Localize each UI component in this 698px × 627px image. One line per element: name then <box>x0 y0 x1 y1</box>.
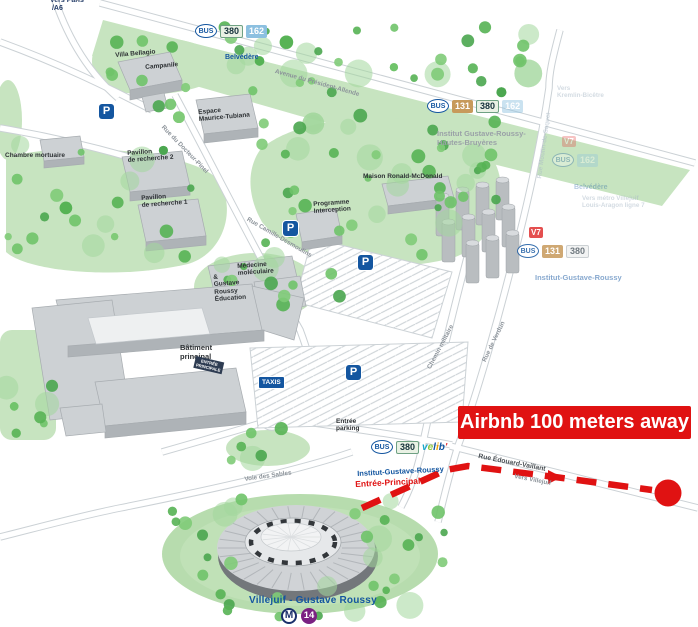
stop-hautes-bruyeres-label-0: Institut Gustave-Roussy- Hautes-Bruyères <box>437 130 526 147</box>
bus-icon: BUS <box>427 99 449 113</box>
parking-icon-2: P <box>358 255 373 270</box>
stop-institut-gustave-roussy-label-0: Institut-Gustave-Roussy <box>535 274 622 283</box>
bus-line-badge: 162 <box>577 154 598 167</box>
stop-institut-gustave-roussy: BUS131380Institut-Gustave-Roussy <box>517 244 589 258</box>
parking-icon-3: P <box>346 365 361 380</box>
espace-maurice-tubiana: Espace Maurice-Tubiana <box>198 105 250 124</box>
parking-icon-1: P <box>283 221 298 236</box>
stop-faded-162-label-0: Belvédère <box>574 184 607 192</box>
rue-camille-desmoulins: Rue Camille-Desmoulins <box>245 216 313 259</box>
rue-de-verdun: Rue de Verdun <box>481 320 507 363</box>
villa-bellagio: Villa Bellagio <box>115 48 156 59</box>
pavillon-recherche-2: Pavillon de recherche 2 <box>127 147 174 165</box>
taxis-sign: TAXIS <box>259 377 284 388</box>
maison-ronald-mcdonald: Maison Ronald-McDonald <box>363 173 442 180</box>
metro-m-icon: M <box>281 608 297 624</box>
vers-kremlin-bicetre: Vers Kremlin-Bicêtre <box>557 85 604 99</box>
bus-line-badge: 380 <box>396 441 419 454</box>
rue-edouard-vaillant: Rue Édouard-Vaillant <box>478 453 547 474</box>
vers-metro-louis-aragon: Vers métro Villejuif Louis-Aragon ligne … <box>582 195 645 209</box>
voie-des-sables: Voie des Sables <box>244 469 292 483</box>
bus-line-badge: 162 <box>246 25 267 38</box>
chambre-mortuaire: Chambre mortuaire <box>5 152 65 159</box>
bus-line-badge: 380 <box>476 100 499 113</box>
vers-paris: Vers Paris /A6 <box>50 0 84 13</box>
bus-icon: BUS <box>195 24 217 38</box>
bus-line-badge: 380 <box>220 25 243 38</box>
v7-badge: V7 <box>529 227 543 238</box>
campus-map: Vers Paris /A6➤Villa BellagioCampanileEs… <box>0 0 698 627</box>
stop-belvedere: BUS380162Belvédère <box>195 24 267 38</box>
campanile: Campanile <box>145 61 178 71</box>
bus-icon: BUS <box>517 244 539 258</box>
bus-icon: BUS <box>371 440 393 454</box>
metro-line-14-icon: 14 <box>301 608 317 624</box>
entree-parking: Entrée parking <box>336 418 359 433</box>
v7-badge-faded: V7 <box>562 136 576 147</box>
programme-interception: Programme Interception <box>313 198 351 215</box>
gustave-roussy-education: & Gustave Roussy Éducation <box>213 272 246 304</box>
labels-layer: Vers Paris /A6➤Villa BellagioCampanileEs… <box>0 0 698 627</box>
entree-principale-sign: ENTRÉE PRINCIPALE <box>193 356 224 374</box>
vers-villejuif: Vers Villejuif <box>514 473 552 487</box>
bus-icon: BUS <box>552 153 574 167</box>
stop-entree-principal: BUS380velib'Institut-Gustave-RoussyEntré… <box>371 440 447 454</box>
bus-line-badge: 131 <box>452 100 473 113</box>
bus-line-badge: 380 <box>566 245 589 258</box>
velib-logo: velib' <box>422 441 447 454</box>
avenue-president-allende: Avenue du Président-Allende <box>274 68 360 98</box>
parking-icon-0: P <box>99 104 114 119</box>
bus-line-badge: 131 <box>542 245 563 258</box>
stop-faded-162: BUS162Belvédère <box>552 153 598 167</box>
stop-hautes-bruyeres: BUS131380162Institut Gustave-Roussy- Hau… <box>427 99 523 113</box>
rue-moulin-de-saquet: Rue Moulin-de-Saquet <box>536 112 552 179</box>
stop-belvedere-label-0: Belvédère <box>225 54 258 62</box>
chemin-militaire: Chemin militaire <box>426 324 455 371</box>
stop-entree-principal-label-1: Entrée-Principal <box>355 477 421 490</box>
airbnb-annotation: Airbnb 100 meters away <box>458 406 691 439</box>
bus-line-badge: 162 <box>502 100 523 113</box>
villejuif-gustave-roussy: Villejuif - Gustave Roussy <box>249 595 377 607</box>
pavillon-recherche-1: Pavillon de recherche 1 <box>141 192 188 210</box>
